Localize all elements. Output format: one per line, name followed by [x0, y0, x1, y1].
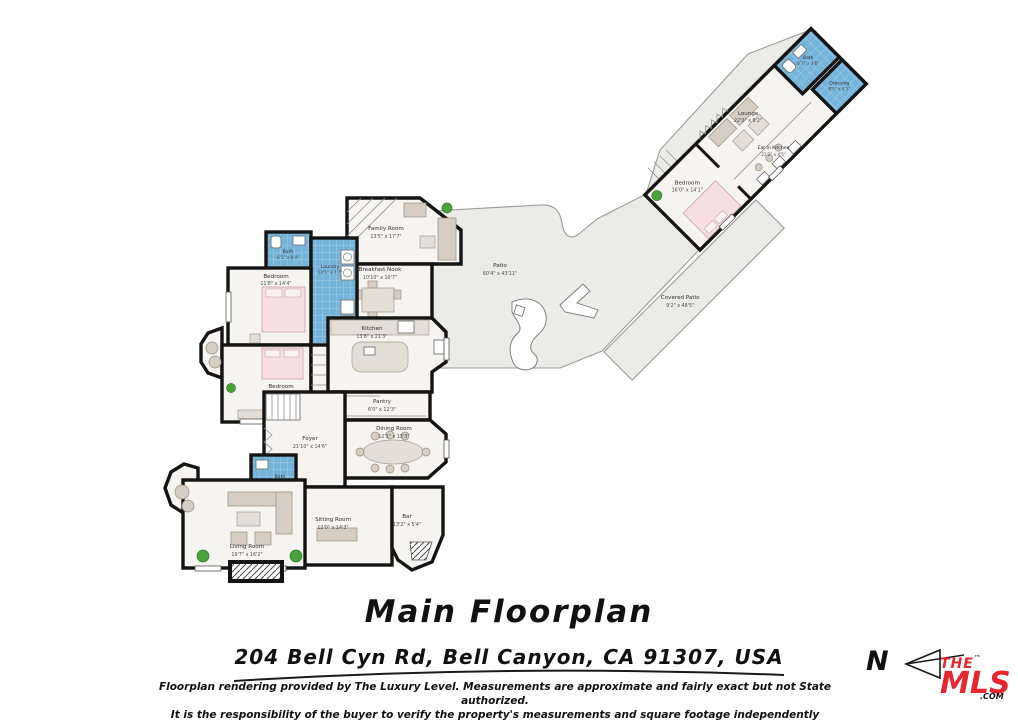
window	[444, 440, 449, 458]
room-label-breakfast: Breakfast Nook	[359, 267, 402, 273]
page-title: Main Floorplan	[0, 594, 1018, 630]
coffee-table	[237, 512, 260, 526]
chair	[394, 290, 401, 299]
room-label-sitting: Sitting Room	[315, 517, 351, 523]
room-dims-bath-wing: 8'7" x 4'6"	[797, 61, 819, 66]
room-dims-dining: 12'1" x 15'3"	[378, 434, 409, 440]
plant-icon	[442, 203, 452, 213]
room-label-pantry: Pantry	[373, 399, 392, 405]
sectional-sofa	[276, 492, 292, 534]
nightstand	[250, 334, 260, 343]
room-label-lounge: Lounge	[738, 111, 759, 117]
room-living: Living Room 19'7" x 16'2"	[165, 464, 305, 581]
window	[444, 338, 449, 360]
plant-icon	[290, 550, 302, 562]
disclaimer-line-2: It is the responsibility of the buyer to…	[130, 708, 860, 720]
entry-porch	[230, 562, 282, 581]
sink	[293, 236, 305, 245]
room-dims-breakfast: 10'10" x 10'7"	[363, 275, 397, 281]
plant-icon	[227, 384, 236, 393]
kitchen-island	[352, 342, 408, 372]
floorplan-page: Patio 60'4" x 43'11" Covered Patio 9'2" …	[0, 0, 1018, 720]
disclaimer-line-1: Floorplan rendering provided by The Luxu…	[130, 680, 860, 708]
room-label-patio: Patio	[493, 263, 507, 269]
dining-table	[363, 440, 423, 464]
room-label-living: Living Room	[230, 544, 264, 550]
plant-icon	[197, 550, 209, 562]
chair	[401, 464, 409, 472]
room-dims-kitchen: 13'8" x 21'3"	[356, 334, 387, 340]
room-bar: Bar 13'2" x 5'4"	[392, 487, 443, 570]
staircase	[266, 394, 300, 420]
round-chair	[175, 485, 189, 499]
island-sink	[364, 347, 375, 355]
room-sitting: Sitting Room 12'0" x 14'3"	[298, 487, 392, 565]
room-bedroom-1: Bedroom 11'8" x 14'4"	[226, 268, 311, 345]
toilet	[271, 236, 281, 248]
chair	[422, 448, 430, 456]
floorplan-drawing: Patio 60'4" x 43'11" Covered Patio 9'2" …	[0, 0, 1018, 590]
fridge	[434, 340, 444, 354]
room-label-bar: Bar	[402, 514, 412, 520]
room-label-bedroom-wing: Bedroom	[675, 180, 700, 186]
room-dims-bedroom-wing: 16'0" x 14'1"	[672, 187, 703, 193]
room-label-foyer: Foyer	[302, 436, 318, 442]
round-chair	[209, 356, 221, 368]
chair	[371, 464, 379, 472]
room-dims-bath-top: 6'1" x 8'4"	[277, 255, 299, 260]
room-dims-sitting: 12'0" x 14'3"	[317, 525, 348, 531]
stove	[398, 321, 414, 333]
armchair	[404, 203, 426, 217]
breakfast-table	[362, 288, 394, 312]
room-label-kitchen: Kitchen	[361, 326, 382, 332]
room-dims-bar: 13'2" x 5'4"	[393, 522, 421, 528]
room-bath-top: Bath 6'1" x 8'4"	[266, 232, 311, 270]
round-chair	[206, 342, 218, 354]
mls-logo: THE™ MLS .COM	[940, 655, 1012, 701]
round-chair	[182, 500, 194, 512]
room-dining: Dining Room 12'1" x 15'3"	[345, 420, 449, 478]
pillow	[266, 289, 282, 297]
room-dims-laundry: 14'5" x 7'7"	[318, 270, 343, 275]
room-breakfast-nook: Breakfast Nook 10'10" x 10'7"	[347, 264, 432, 322]
chair	[356, 448, 364, 456]
ottoman	[420, 236, 435, 248]
pillow	[285, 289, 301, 297]
window	[195, 566, 221, 571]
room-dims-bedroom-1: 11'8" x 14'4"	[260, 281, 291, 287]
room-label-bedroom-1: Bedroom	[263, 274, 288, 280]
sofa	[438, 218, 456, 260]
room-pantry: Pantry 6'0" x 12'3"	[336, 392, 430, 420]
chair	[368, 281, 377, 288]
room-label-covered-patio: Covered Patio	[661, 295, 700, 301]
room-dims-lounge: 22'0" x 9'2"	[734, 118, 762, 124]
room-family: Family Room 13'5" x 17'7"	[347, 198, 461, 264]
room-dims-patio: 60'4" x 43'11"	[483, 271, 517, 277]
room-dims-foyer: 21'10" x 14'6"	[293, 444, 327, 450]
pillow	[284, 350, 299, 357]
room-dims-family: 13'5" x 17'7"	[370, 234, 401, 240]
dresser	[238, 410, 264, 419]
room-label-eat-in-kitchen: Eat in Kitchen	[758, 145, 790, 151]
room-label-dining: Dining Room	[376, 426, 412, 432]
room-dims-pantry: 6'0" x 12'3"	[368, 407, 396, 413]
patio-area: Patio 60'4" x 43'11"	[433, 29, 811, 370]
sink	[256, 460, 268, 469]
disclaimer: Floorplan rendering provided by The Luxu…	[130, 680, 860, 720]
chair	[386, 465, 394, 473]
room-dims-living: 19'7" x 16'2"	[231, 552, 262, 558]
mls-logo-tm: ™	[974, 654, 981, 662]
room-kitchen: Kitchen 13'8" x 21'3"	[328, 318, 449, 392]
window	[226, 292, 231, 322]
north-label: N	[866, 646, 889, 677]
room-dims-covered-patio: 9'2" x 48'5"	[666, 303, 694, 309]
room-label-family: Family Room	[368, 226, 404, 232]
room-label-bedroom-2: Bedroom	[268, 384, 293, 390]
room-dims-dressing: 4'9" x 4'5"	[828, 87, 850, 92]
room-dims-eat-in-kitchen: 21'2" x 4'5"	[761, 152, 786, 157]
pillow	[265, 350, 280, 357]
